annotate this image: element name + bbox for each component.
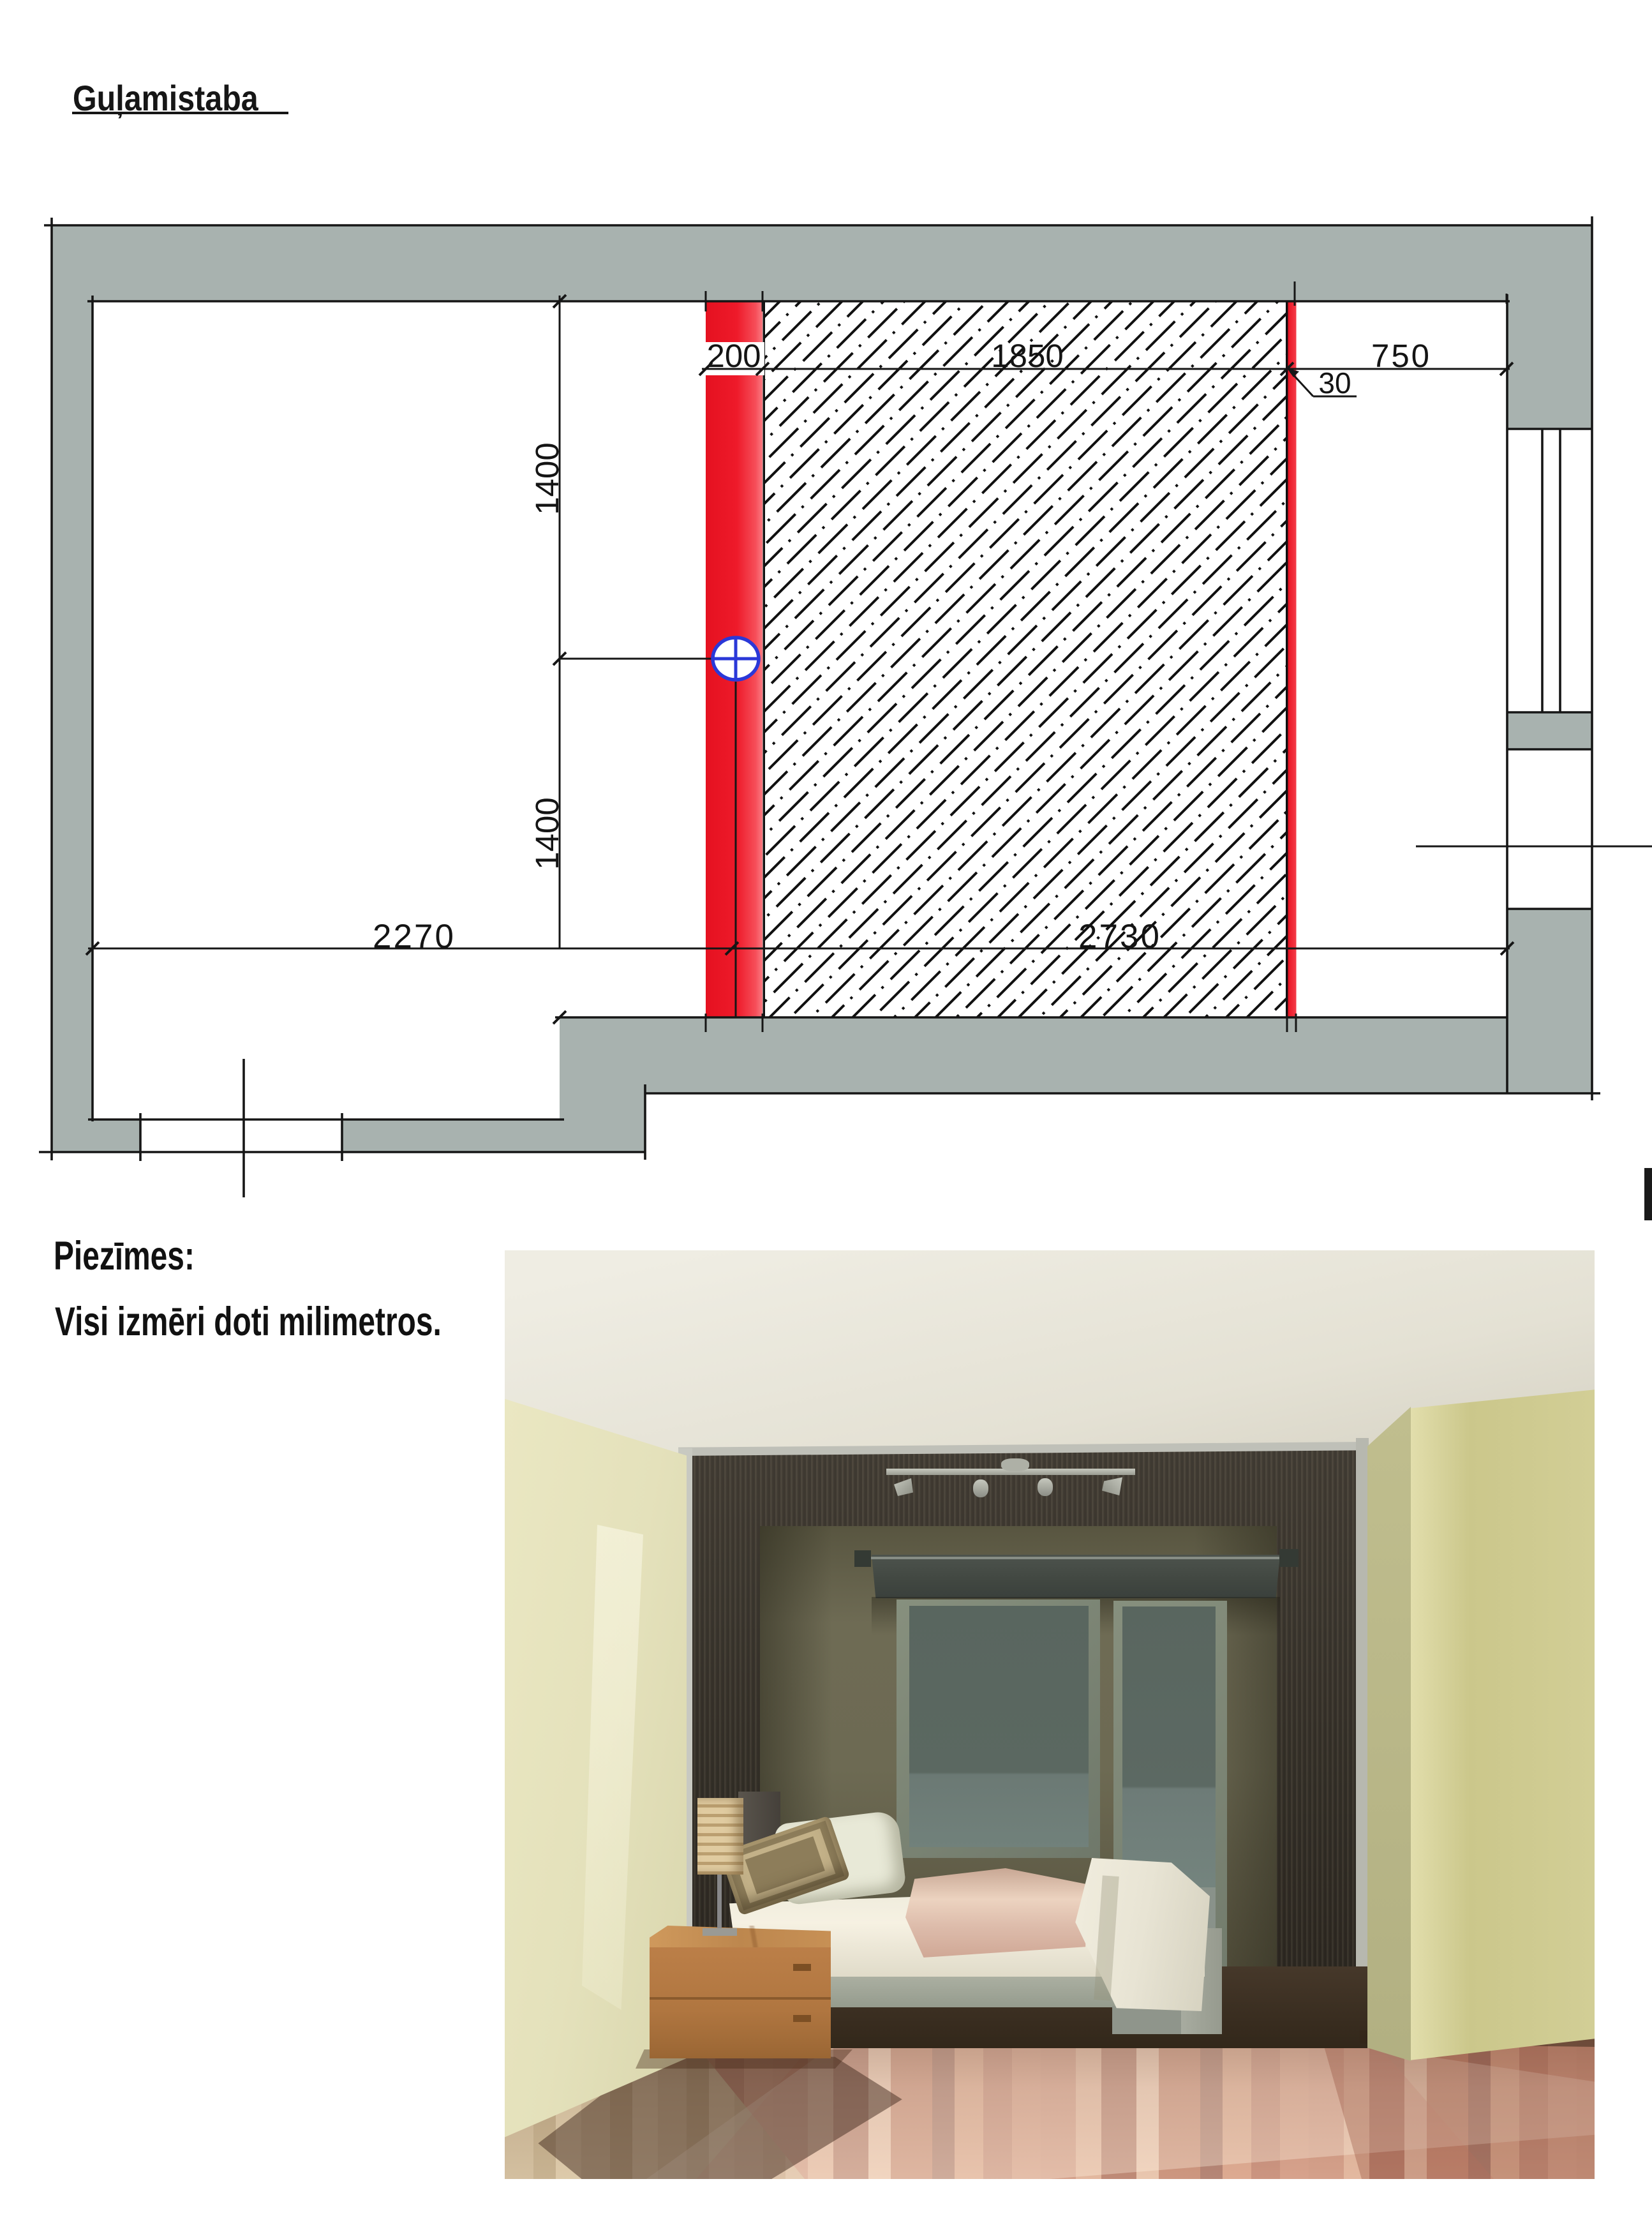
svg-text:750: 750	[1371, 338, 1431, 374]
svg-text:30: 30	[1318, 366, 1351, 400]
svg-text:1400: 1400	[529, 797, 565, 869]
svg-text:1400: 1400	[529, 442, 565, 514]
svg-text:1850: 1850	[991, 338, 1063, 374]
svg-text:2730: 2730	[1078, 918, 1161, 955]
svg-text:200: 200	[706, 338, 761, 374]
svg-text:2270: 2270	[373, 918, 456, 955]
